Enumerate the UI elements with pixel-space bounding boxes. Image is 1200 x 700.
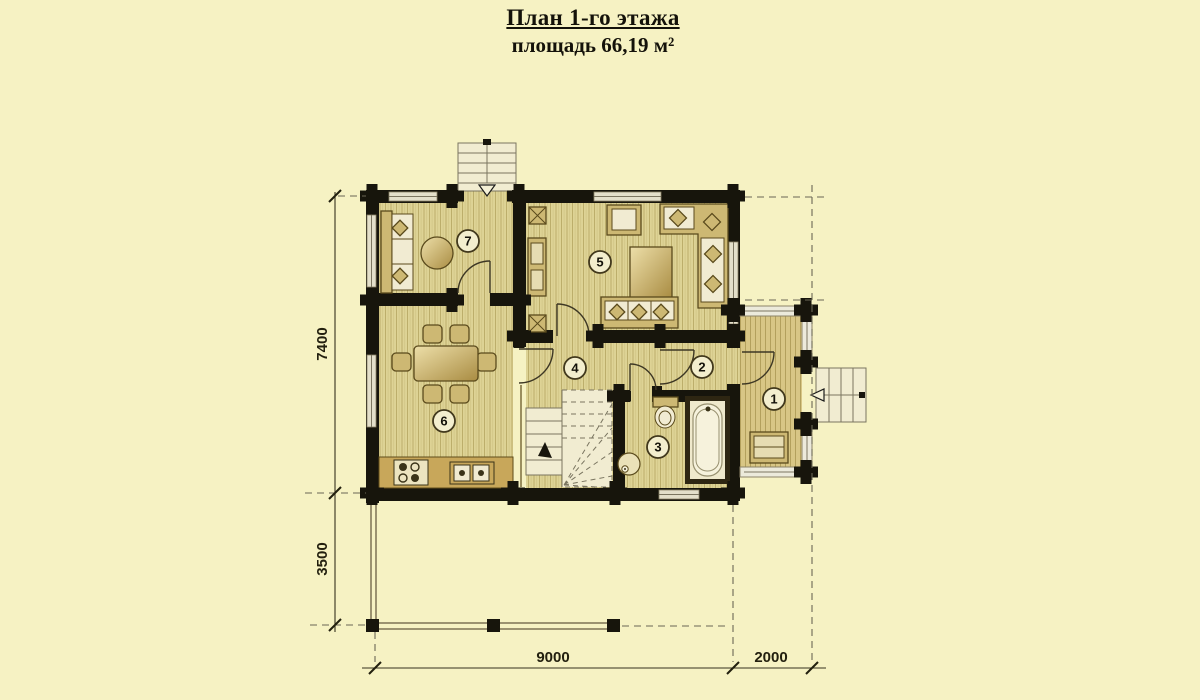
stove (394, 460, 428, 485)
window (659, 490, 699, 499)
terrace-outline (366, 503, 726, 632)
room-label-7: 7 (464, 234, 471, 249)
window (367, 355, 376, 427)
sofa (601, 297, 678, 328)
room-label-6: 6 (440, 414, 447, 429)
room-label-5: 5 (596, 255, 603, 270)
room-label-2: 2 (698, 360, 705, 375)
double-sink (450, 462, 494, 484)
shelf-unit (528, 238, 546, 296)
floor-plan-canvas: 7 (0, 0, 1200, 700)
faucet (706, 407, 711, 412)
room-label-4: 4 (571, 361, 579, 376)
stool (529, 315, 546, 332)
window (367, 215, 376, 287)
stool (529, 207, 546, 224)
window (594, 192, 661, 201)
stair-post-marker (483, 139, 491, 145)
room-label-1: 1 (770, 392, 777, 407)
washing-machine (618, 453, 640, 475)
terrace-post (487, 619, 500, 632)
dimension-left-lower: 3500 (314, 542, 331, 575)
kitchen-counter (379, 457, 513, 488)
terrace-post (607, 619, 620, 632)
bench (750, 432, 788, 463)
bathtub (685, 396, 730, 484)
window (389, 192, 437, 201)
top-entrance-stairs (458, 139, 516, 196)
right-entrance-stairs (811, 368, 866, 422)
dimension-bottom-left: 9000 (536, 649, 569, 666)
door-opening (727, 348, 740, 384)
round-table (421, 237, 453, 269)
dimension-bottom-right: 2000 (754, 649, 787, 666)
armchair (607, 205, 641, 235)
dimension-left-upper: 7400 (314, 327, 331, 360)
floor-plan-page: План 1-го этажа площадь 66,19 м² (0, 0, 1200, 700)
sofa (381, 211, 413, 293)
coffee-table (630, 247, 672, 298)
room-label-3: 3 (654, 440, 661, 455)
terrace-post (366, 619, 379, 632)
